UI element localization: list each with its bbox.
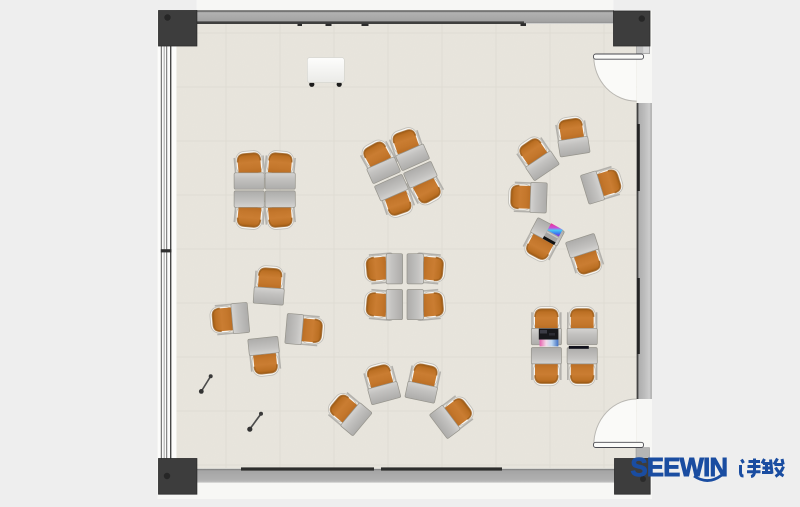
svg-text:SEEWIN: SEEWIN	[631, 454, 729, 482]
